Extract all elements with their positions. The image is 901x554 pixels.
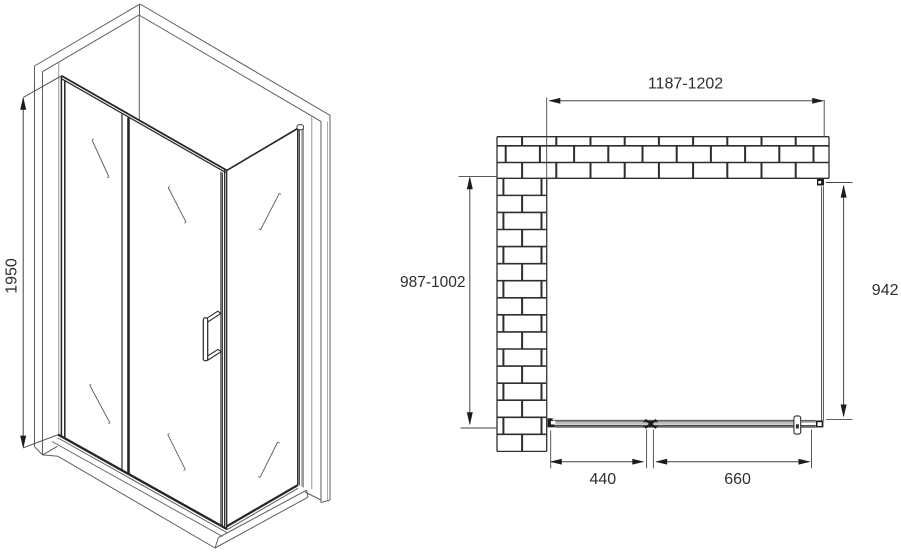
- svg-text:942: 942: [872, 282, 899, 299]
- svg-text:440: 440: [589, 471, 616, 488]
- svg-text:987-1002: 987-1002: [400, 274, 466, 291]
- svg-text:660: 660: [724, 471, 751, 488]
- svg-text:1187-1202: 1187-1202: [648, 76, 723, 93]
- svg-text:1950: 1950: [4, 258, 21, 294]
